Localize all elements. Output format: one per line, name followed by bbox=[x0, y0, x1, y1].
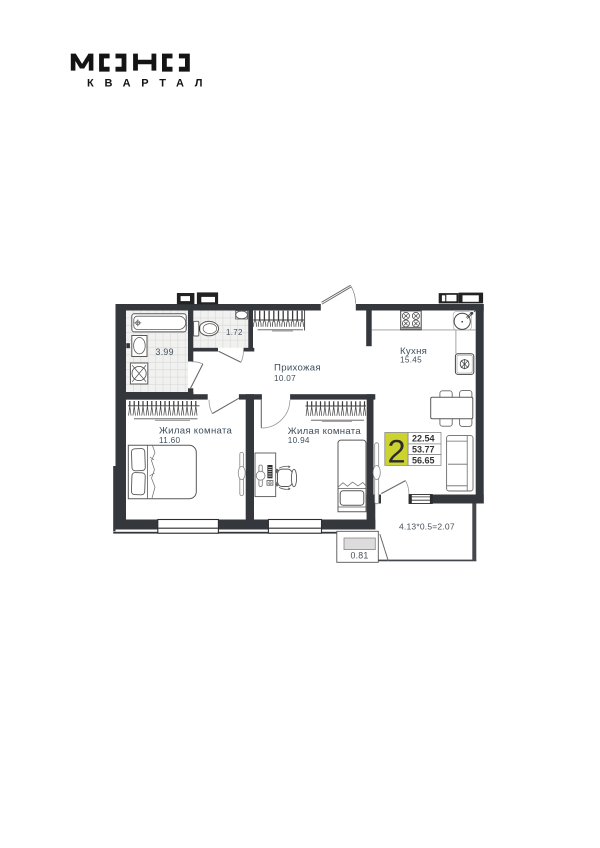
svg-text:2: 2 bbox=[388, 433, 406, 469]
svg-text:15.45: 15.45 bbox=[400, 356, 422, 365]
svg-text:53.77: 53.77 bbox=[412, 445, 435, 455]
svg-text:10.07: 10.07 bbox=[274, 374, 296, 383]
svg-text:1.72: 1.72 bbox=[226, 328, 243, 337]
svg-text:10.94: 10.94 bbox=[288, 436, 310, 445]
svg-text:56.65: 56.65 bbox=[412, 455, 435, 465]
svg-text:3.99: 3.99 bbox=[156, 347, 174, 357]
svg-text:Прихожая: Прихожая bbox=[274, 362, 321, 373]
svg-text:11.60: 11.60 bbox=[159, 436, 181, 445]
svg-text:22.54: 22.54 bbox=[412, 434, 435, 444]
svg-text:0.81: 0.81 bbox=[351, 551, 369, 561]
svg-text:4.13*0.5=2.07: 4.13*0.5=2.07 bbox=[399, 522, 455, 532]
